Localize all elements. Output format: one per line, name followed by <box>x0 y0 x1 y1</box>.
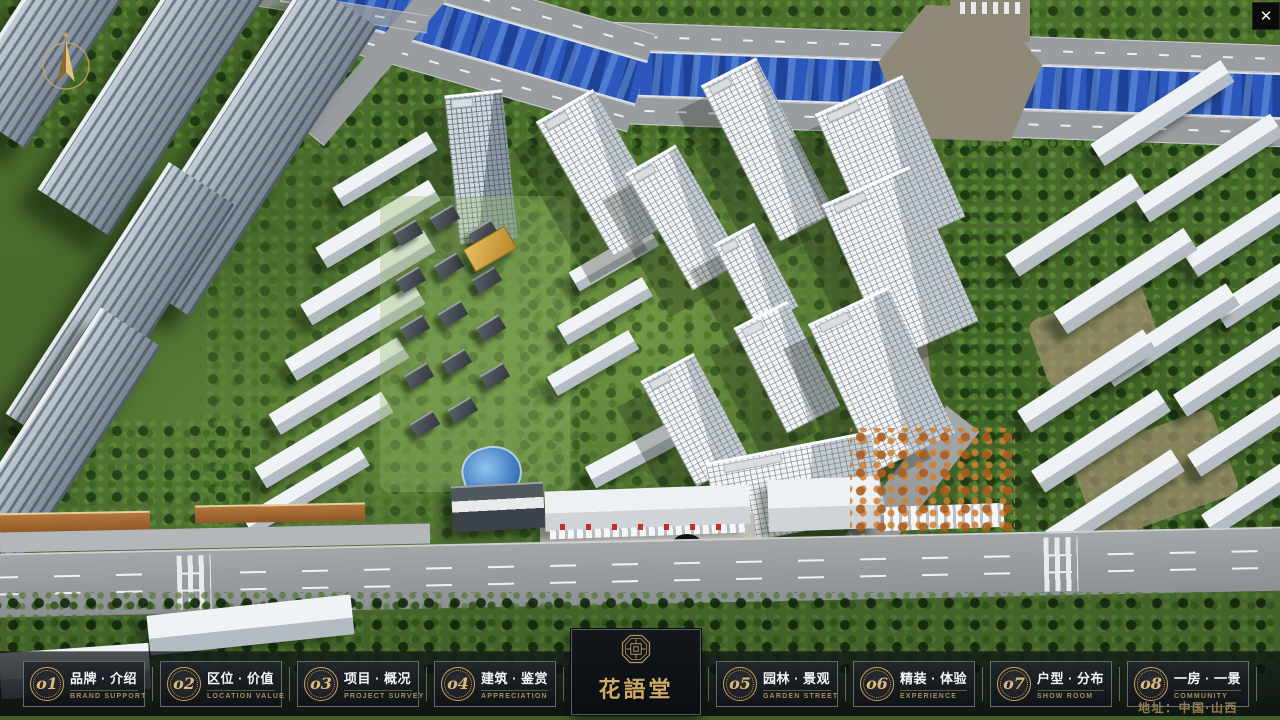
menu-item-number: o3 <box>310 676 332 692</box>
menu-item-7[interactable]: o7 户型 · 分布 SHOW ROOM <box>990 661 1112 707</box>
menu-divider <box>982 667 983 701</box>
sales-presentation-app: ✕ o1 品牌 · 介绍 BRAND SUPPORT o2 区位 · 价值 LO… <box>0 0 1280 720</box>
menu-item-subtitle: BRAND SUPPORT <box>70 693 138 700</box>
menu-item-number: o2 <box>173 676 195 692</box>
menu-item-number: o4 <box>447 676 469 692</box>
menu-item-number-badge: o8 <box>1134 667 1168 701</box>
project-address: 地址：中国·山西 <box>1138 699 1238 716</box>
menu-item-number-badge: o7 <box>997 667 1031 701</box>
menu-item-number: o1 <box>36 676 58 692</box>
crosswalk <box>1043 537 1078 592</box>
menu-item-number: o8 <box>1140 676 1162 692</box>
menu-divider <box>563 667 564 701</box>
masterplan-render <box>0 0 1280 720</box>
menu-divider <box>845 667 846 701</box>
menu-item-label: 户型 · 分布 <box>1037 668 1104 691</box>
menu-item-number: o7 <box>1003 676 1025 692</box>
menu-item-number-badge: o5 <box>723 667 757 701</box>
menu-divider <box>708 667 709 701</box>
menu-item-subtitle: GARDEN STREET <box>763 693 831 700</box>
street-wall <box>195 503 365 524</box>
menu-item-subtitle: SHOW ROOM <box>1037 693 1104 700</box>
project-logo-tagline: · · · · · · · · · · <box>605 707 666 711</box>
menu-item-label: 精装 · 体验 <box>900 668 967 691</box>
menu-item-number-badge: o1 <box>30 667 64 701</box>
menu-divider <box>152 667 153 701</box>
menu-item-subtitle: EXPERIENCE <box>900 693 967 700</box>
entrance-gate <box>451 482 545 533</box>
menu-item-number-badge: o3 <box>304 667 338 701</box>
menu-item-label: 建筑 · 鉴赏 <box>481 668 548 691</box>
menu-item-2[interactable]: o2 区位 · 价值 LOCATION VALUE <box>160 661 282 707</box>
bottom-navigation-bar: o1 品牌 · 介绍 BRAND SUPPORT o2 区位 · 价值 LOCA… <box>0 652 1280 716</box>
parked-cars-row <box>560 524 735 530</box>
project-logo-title: 花語堂 <box>598 672 673 704</box>
menu-item-subtitle: LOCATION VALUE <box>207 693 275 700</box>
menu-item-number-badge: o2 <box>167 667 201 701</box>
north-approach-road <box>950 0 1030 42</box>
menu-item-number-badge: o4 <box>441 667 475 701</box>
menu-item-3[interactable]: o3 项目 · 概况 PROJECT SURVEY <box>297 661 419 707</box>
crosswalk <box>960 2 1020 14</box>
menu-divider <box>1256 667 1257 701</box>
seal-icon <box>621 634 651 669</box>
menu-item-number: o6 <box>866 676 888 692</box>
menu-item-label: 品牌 · 介绍 <box>70 668 138 691</box>
menu-group-left: o1 品牌 · 介绍 BRAND SUPPORT o2 区位 · 价值 LOCA… <box>23 661 564 707</box>
menu-divider <box>426 667 427 701</box>
menu-divider <box>289 667 290 701</box>
menu-item-label: 园林 · 景观 <box>763 668 831 691</box>
menu-item-subtitle: PROJECT SURVEY <box>344 693 412 700</box>
close-button[interactable]: ✕ <box>1252 2 1280 30</box>
menu-item-number: o5 <box>729 676 751 692</box>
menu-item-1[interactable]: o1 品牌 · 介绍 BRAND SUPPORT <box>23 661 145 707</box>
menu-item-5[interactable]: o5 园林 · 景观 GARDEN STREET <box>716 661 838 707</box>
menu-item-number-badge: o6 <box>860 667 894 701</box>
menu-item-subtitle: APPRECIATION <box>481 693 548 700</box>
project-logo-panel[interactable]: 花語堂 · · · · · · · · · · <box>571 629 701 715</box>
orange-tree-row <box>850 428 1015 536</box>
menu-item-label: 项目 · 概况 <box>344 668 412 691</box>
menu-item-label: 区位 · 价值 <box>207 668 275 691</box>
close-icon: ✕ <box>1260 7 1273 25</box>
menu-item-label: 一房 · 一景 <box>1174 668 1241 691</box>
menu-item-6[interactable]: o6 精装 · 体验 EXPERIENCE <box>853 661 975 707</box>
menu-item-4[interactable]: o4 建筑 · 鉴赏 APPRECIATION <box>434 661 556 707</box>
north-compass-icon <box>36 32 96 96</box>
menu-divider <box>1119 667 1120 701</box>
